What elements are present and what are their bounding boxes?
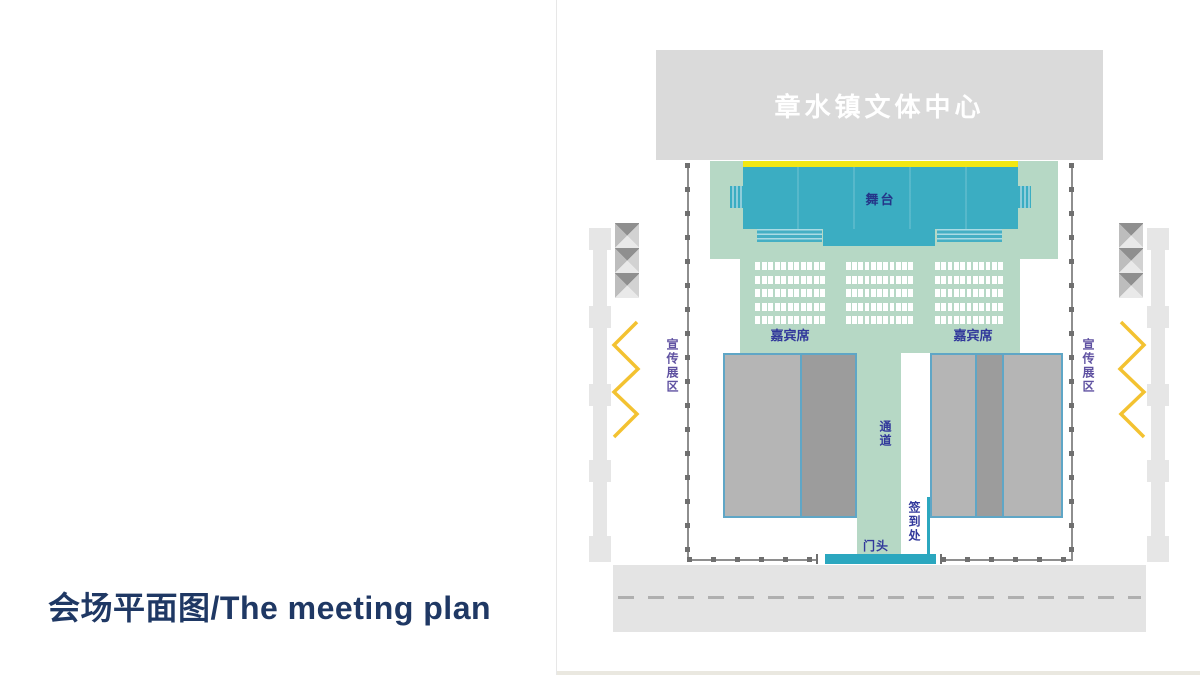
- seat: [755, 289, 760, 297]
- seat: [820, 276, 825, 284]
- seat: [820, 303, 825, 311]
- signin-divider-line: [927, 497, 930, 554]
- seat: [762, 303, 767, 311]
- seat-row: [755, 289, 825, 297]
- seat: [794, 262, 799, 270]
- seat: [908, 276, 913, 284]
- seat: [755, 262, 760, 270]
- seat: [768, 262, 773, 270]
- seat: [865, 276, 870, 284]
- seat: [960, 316, 965, 324]
- seat: [877, 316, 882, 324]
- seat: [941, 289, 946, 297]
- audience-block-right-light-section: [932, 355, 975, 516]
- seat: [986, 276, 991, 284]
- zigzag-display-right: [1116, 320, 1150, 440]
- wall-pilaster: [589, 460, 611, 482]
- seat: [775, 303, 780, 311]
- seat-row: [755, 262, 825, 270]
- seat: [935, 262, 940, 270]
- seat: [967, 276, 972, 284]
- stage-stairs-center: [823, 229, 935, 246]
- seat: [814, 303, 819, 311]
- seat: [852, 289, 857, 297]
- seat: [877, 262, 882, 270]
- road-center-dashed-line: [618, 596, 1141, 599]
- seat-row: [935, 316, 1003, 324]
- seat: [865, 262, 870, 270]
- seat: [762, 316, 767, 324]
- seat: [902, 289, 907, 297]
- seat: [846, 316, 851, 324]
- wall-pilaster: [589, 228, 611, 250]
- seat: [890, 316, 895, 324]
- seat: [871, 276, 876, 284]
- seat: [801, 289, 806, 297]
- seat: [858, 289, 863, 297]
- seat: [865, 289, 870, 297]
- seat: [781, 303, 786, 311]
- seat: [852, 262, 857, 270]
- seat: [775, 262, 780, 270]
- pyramid-icon: [615, 273, 639, 298]
- seat: [768, 276, 773, 284]
- seat: [890, 289, 895, 297]
- seat: [865, 303, 870, 311]
- seat: [883, 276, 888, 284]
- stage-stairs-left: [757, 229, 822, 242]
- seat: [998, 303, 1003, 311]
- seat: [948, 303, 953, 311]
- seat: [781, 289, 786, 297]
- seat: [858, 262, 863, 270]
- seat: [846, 289, 851, 297]
- seat: [992, 316, 997, 324]
- seat: [941, 316, 946, 324]
- seat-row: [755, 303, 825, 311]
- audience-block-left-dark-section: [800, 355, 855, 516]
- seat: [852, 316, 857, 324]
- seat: [814, 276, 819, 284]
- seat: [883, 316, 888, 324]
- seat-row: [755, 316, 825, 324]
- seat: [935, 276, 940, 284]
- seat: [883, 303, 888, 311]
- stage-side-step-left: [730, 186, 743, 208]
- zigzag-display-left: [608, 320, 642, 440]
- seat: [998, 316, 1003, 324]
- seat: [973, 303, 978, 311]
- entrance-bar: [825, 554, 936, 564]
- seat: [960, 303, 965, 311]
- seat: [998, 262, 1003, 270]
- seat: [788, 276, 793, 284]
- seat: [941, 276, 946, 284]
- seat: [814, 262, 819, 270]
- seat: [877, 276, 882, 284]
- boundary-dotted-line-left: [684, 163, 691, 561]
- seat: [807, 289, 812, 297]
- seat: [941, 262, 946, 270]
- seat: [979, 289, 984, 297]
- seat: [807, 303, 812, 311]
- seat: [935, 289, 940, 297]
- building-banner-label: 章水镇文体中心: [774, 87, 984, 124]
- boundary-endcap-right: [940, 554, 942, 564]
- seat: [877, 289, 882, 297]
- wall-pilaster: [1147, 460, 1169, 482]
- seat: [852, 303, 857, 311]
- seat: [954, 262, 959, 270]
- guest-seats-label-right: 嘉宾席: [948, 325, 998, 344]
- seat: [762, 289, 767, 297]
- seat: [896, 276, 901, 284]
- seat: [814, 316, 819, 324]
- seat: [986, 289, 991, 297]
- seat: [883, 289, 888, 297]
- seat-column: [755, 262, 825, 324]
- stage-side-step-right: [1018, 186, 1031, 208]
- seat: [948, 289, 953, 297]
- seat: [998, 289, 1003, 297]
- seat: [986, 262, 991, 270]
- pyramid-icon: [1119, 273, 1143, 298]
- slide-title: 会场平面图/The meeting plan: [48, 583, 491, 629]
- seat: [755, 276, 760, 284]
- aisle-label: 通道: [877, 420, 894, 448]
- boundary-endcap-left: [816, 554, 818, 564]
- seat: [775, 316, 780, 324]
- seat: [794, 303, 799, 311]
- seat: [820, 262, 825, 270]
- seat-row: [755, 276, 825, 284]
- seat: [902, 262, 907, 270]
- seat: [807, 316, 812, 324]
- audience-block-right-dark-section: [975, 355, 1002, 516]
- seat: [788, 303, 793, 311]
- seat: [954, 276, 959, 284]
- seat: [960, 289, 965, 297]
- seat: [794, 289, 799, 297]
- wall-pilaster: [1147, 306, 1169, 328]
- seat: [768, 303, 773, 311]
- center-aisle: [857, 353, 901, 554]
- seat: [941, 303, 946, 311]
- seat: [858, 316, 863, 324]
- wall-pilaster: [1147, 536, 1169, 562]
- seat: [973, 289, 978, 297]
- seat: [986, 316, 991, 324]
- seat: [908, 303, 913, 311]
- seat: [935, 303, 940, 311]
- seat: [967, 262, 972, 270]
- seat: [954, 303, 959, 311]
- seat: [871, 262, 876, 270]
- seat-row: [846, 276, 913, 284]
- boundary-dotted-line-right: [1068, 163, 1075, 561]
- seat: [871, 316, 876, 324]
- seat: [846, 303, 851, 311]
- seat: [992, 262, 997, 270]
- seat: [768, 316, 773, 324]
- pyramid-icon: [1119, 223, 1143, 248]
- seat: [755, 303, 760, 311]
- seat: [775, 276, 780, 284]
- signin-label: 签到处: [906, 501, 923, 543]
- seat: [788, 316, 793, 324]
- seat: [902, 303, 907, 311]
- seat: [948, 276, 953, 284]
- seat: [846, 276, 851, 284]
- promo-zone-label-right: 宣传展区: [1080, 338, 1097, 394]
- seat: [890, 262, 895, 270]
- seat: [807, 262, 812, 270]
- seat: [896, 303, 901, 311]
- seat: [794, 316, 799, 324]
- seat: [807, 276, 812, 284]
- seat: [801, 303, 806, 311]
- seat: [858, 303, 863, 311]
- guest-seats-label-left: 嘉宾席: [765, 325, 815, 344]
- speaker-stack-left: [615, 223, 639, 298]
- seat: [967, 316, 972, 324]
- seat: [948, 262, 953, 270]
- seat: [902, 316, 907, 324]
- seat: [979, 276, 984, 284]
- slide-canvas: 会场平面图/The meeting plan 章水镇文体中心 舞台 嘉宾席 嘉宾…: [0, 0, 1200, 675]
- seat-row: [935, 289, 1003, 297]
- seat-row: [846, 303, 913, 311]
- stage: 舞台: [743, 167, 1018, 229]
- seat: [973, 316, 978, 324]
- seat: [781, 316, 786, 324]
- seat: [954, 289, 959, 297]
- seat-column: [846, 262, 913, 324]
- seat: [908, 316, 913, 324]
- seat: [908, 289, 913, 297]
- seat-row: [846, 316, 913, 324]
- seat: [755, 316, 760, 324]
- seat: [896, 289, 901, 297]
- seat-row: [846, 289, 913, 297]
- building-banner: 章水镇文体中心: [656, 50, 1103, 160]
- seat: [973, 262, 978, 270]
- seat: [858, 276, 863, 284]
- pyramid-icon: [615, 248, 639, 273]
- seat: [820, 289, 825, 297]
- seat-row: [935, 276, 1003, 284]
- seat: [871, 303, 876, 311]
- seat: [896, 262, 901, 270]
- seat: [781, 276, 786, 284]
- speaker-stack-right: [1119, 223, 1143, 298]
- seat: [814, 289, 819, 297]
- seat: [967, 303, 972, 311]
- seat: [768, 289, 773, 297]
- seat: [775, 289, 780, 297]
- seat: [781, 262, 786, 270]
- seat: [883, 262, 888, 270]
- seat: [973, 276, 978, 284]
- seat: [992, 289, 997, 297]
- seat-row: [935, 303, 1003, 311]
- seat: [902, 276, 907, 284]
- seat: [948, 316, 953, 324]
- audience-block-left-light-section: [725, 355, 800, 516]
- seat: [788, 289, 793, 297]
- seat: [979, 262, 984, 270]
- seat: [979, 303, 984, 311]
- boundary-dotted-line-bottom-left: [687, 556, 818, 563]
- slide-bottom-strip: [557, 671, 1200, 675]
- content-divider-line: [556, 0, 557, 675]
- seat-row: [846, 262, 913, 270]
- seat: [801, 276, 806, 284]
- seat: [865, 316, 870, 324]
- seat: [871, 289, 876, 297]
- seat: [820, 316, 825, 324]
- seat: [960, 276, 965, 284]
- seat: [954, 316, 959, 324]
- audience-block-right-light-section: [1002, 355, 1061, 516]
- pyramid-icon: [615, 223, 639, 248]
- seat: [992, 303, 997, 311]
- seat: [762, 276, 767, 284]
- seat: [794, 276, 799, 284]
- stage-stairs-right: [937, 229, 1002, 242]
- seat: [992, 276, 997, 284]
- seat: [998, 276, 1003, 284]
- seat: [801, 316, 806, 324]
- seat: [986, 303, 991, 311]
- seat: [846, 262, 851, 270]
- stage-label: 舞台: [865, 189, 895, 208]
- audience-block-left: [723, 353, 857, 518]
- seat: [960, 262, 965, 270]
- wall-pilaster: [1147, 228, 1169, 250]
- seat: [801, 262, 806, 270]
- audience-block-right: [930, 353, 1063, 518]
- seat: [935, 316, 940, 324]
- pyramid-icon: [1119, 248, 1143, 273]
- entrance-label: 门头: [863, 537, 889, 554]
- seat: [788, 262, 793, 270]
- wall-pilaster: [589, 536, 611, 562]
- seat: [896, 316, 901, 324]
- seat-column: [935, 262, 1003, 324]
- seat: [877, 303, 882, 311]
- seat: [890, 303, 895, 311]
- seat: [852, 276, 857, 284]
- wall-pilaster: [1147, 384, 1169, 406]
- seat: [979, 316, 984, 324]
- seat-row: [935, 262, 1003, 270]
- seat: [967, 289, 972, 297]
- seat: [762, 262, 767, 270]
- boundary-dotted-line-bottom-right: [941, 556, 1072, 563]
- seat: [908, 262, 913, 270]
- seat: [890, 276, 895, 284]
- promo-zone-label-left: 宣传展区: [664, 338, 681, 394]
